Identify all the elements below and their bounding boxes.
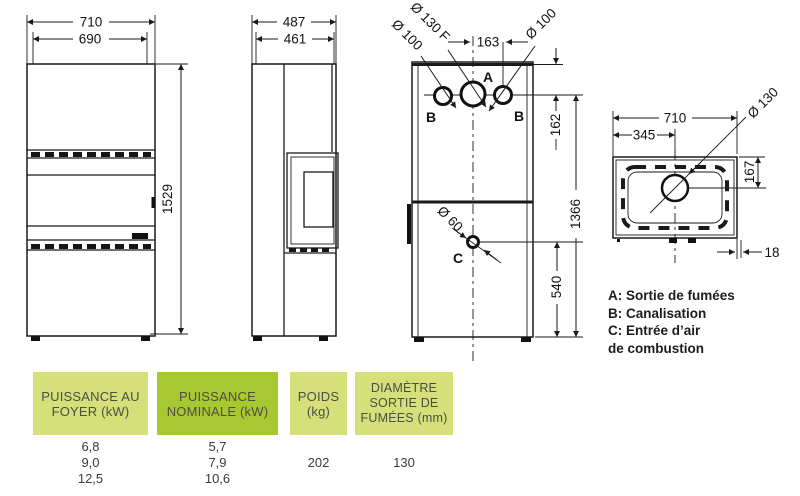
top-rear-gap-dim: 18: [764, 245, 779, 260]
top-flue-diameter-label: Ø 130: [745, 85, 782, 122]
side-foot-left: [253, 336, 262, 341]
value-cell: 202: [290, 455, 347, 471]
top-tab-right: [688, 238, 696, 243]
column-header: DIAMÈTRE SORTIE DE FUMÉES (mm): [355, 372, 453, 435]
value-cell: 130: [355, 455, 453, 471]
column-values: 6,8 9,0 12,5: [33, 439, 148, 487]
flue-outlet-circle: [461, 82, 485, 106]
column-values: 202: [290, 455, 347, 471]
value-cell: 6,8: [33, 439, 148, 455]
legend: A: Sortie de fumées B: Canalisation C: E…: [608, 287, 778, 357]
top-flue-y-dim: 167: [742, 161, 757, 184]
value-cell: 7,9: [157, 455, 278, 471]
back-duct-right-diameter-label: Ø 100: [523, 6, 560, 43]
top-view: Ø 130 710 345 167 18: [613, 85, 781, 263]
front-foot-left: [31, 336, 40, 341]
front-view: 710 690 1529: [27, 14, 188, 341]
front-body: [27, 64, 155, 336]
top-width-dim: 710: [664, 111, 687, 126]
front-width-inner-dim: 690: [79, 32, 102, 47]
spec-column-diametre: DIAMÈTRE SORTIE DE FUMÉES (mm) 130: [355, 372, 453, 471]
legend-line-a: A: Sortie de fumées: [608, 287, 778, 305]
back-air-to-floor-dim: 540: [549, 276, 564, 299]
column-header: POIDS (kg): [290, 372, 347, 435]
front-door-handle: [132, 233, 148, 239]
spec-column-poids: POIDS (kg) 202: [290, 372, 347, 471]
back-foot-right: [521, 337, 531, 342]
marker-b-left: B: [426, 109, 436, 125]
column-header: PUISSANCE NOMINALE (kW): [157, 372, 278, 435]
column-values: 130: [355, 455, 453, 471]
side-depth-inner-dim: 461: [284, 32, 307, 47]
back-flue-offset-dim: 163: [477, 35, 500, 50]
marker-b-right: B: [514, 108, 524, 124]
back-flue-to-floor-dim: 1366: [568, 199, 583, 229]
spec-column-puissance-foyer: PUISSANCE AU FOYER (kW) 6,8 9,0 12,5: [33, 372, 148, 487]
front-height-dim: 1529: [160, 184, 175, 214]
column-header: PUISSANCE AU FOYER (kW): [33, 372, 148, 435]
marker-c: C: [453, 250, 463, 266]
value-cell: 12,5: [33, 471, 148, 487]
back-view: 163 A B B C Ø 130 F Ø 100 Ø 100 Ø 60 162…: [389, 0, 583, 362]
side-view: 487 461: [252, 14, 338, 341]
front-width-outer-dim: 710: [80, 15, 103, 30]
value-cell: 5,7: [157, 439, 278, 455]
marker-a: A: [483, 69, 493, 85]
value-cell: 9,0: [33, 455, 148, 471]
value-cell: 10,6: [157, 471, 278, 487]
duct-right-circle: [495, 87, 512, 104]
side-foot-right: [319, 336, 328, 341]
stove-dimension-sheet: 710 690 1529 487 461: [0, 0, 800, 496]
back-foot-left: [414, 337, 424, 342]
side-depth-outer-dim: 487: [283, 15, 306, 30]
column-values: 5,7 7,9 10,6: [157, 439, 278, 487]
side-body: [252, 64, 336, 336]
legend-line-b: B: Canalisation: [608, 305, 778, 323]
legend-line-c2: de combustion: [608, 340, 778, 358]
spec-column-puissance-nominale: PUISSANCE NOMINALE (kW) 5,7 7,9 10,6: [157, 372, 278, 487]
front-foot-right: [141, 336, 150, 341]
top-tab-left: [669, 238, 677, 243]
top-flue-x-dim: 345: [633, 128, 656, 143]
front-hinge: [152, 197, 156, 208]
legend-line-c: C: Entrée d’air: [608, 322, 778, 340]
duct-left-circle: [435, 88, 452, 105]
back-bracket: [407, 204, 411, 244]
back-top-to-flue-dim: 162: [548, 114, 563, 137]
